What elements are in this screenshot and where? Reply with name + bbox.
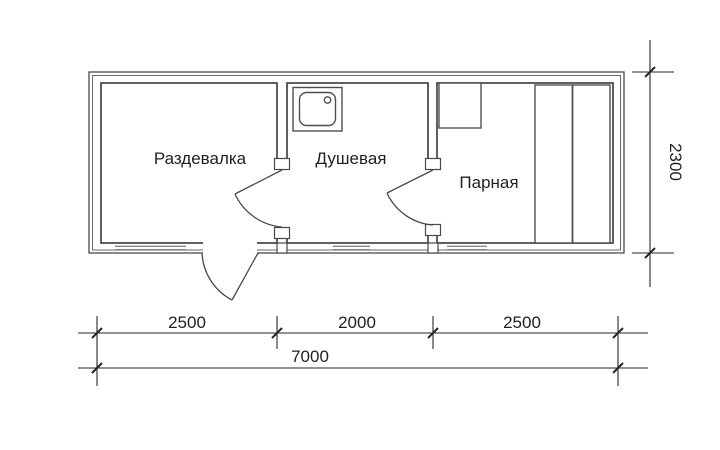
entrance-door-icon (202, 253, 258, 300)
window-razdevalka-icon (115, 246, 186, 250)
opening-dushevaya-parnaya (423, 170, 443, 226)
door-jamb-icon (426, 159, 441, 170)
shower-tray-icon (293, 88, 342, 132)
two-tier-bench-icon (535, 85, 610, 243)
floor-plan-page: Раздевалка Душевая Парная 2500 2000 2500… (0, 0, 720, 450)
opening-entrance (203, 242, 257, 256)
window-parnaya-icon (447, 246, 487, 250)
floor-plan-canvas: Раздевалка Душевая Парная 2500 2000 2500… (0, 0, 720, 450)
entrance-door-leaf (232, 253, 258, 300)
room-label-dushevaya: Душевая (316, 149, 387, 168)
door-jamb-icon (275, 228, 290, 239)
room-label-razdevalka: Раздевалка (154, 149, 247, 168)
dim-text-segment-left: 2500 (168, 313, 206, 332)
shower-drain (324, 97, 330, 103)
dim-text-height: 2300 (666, 143, 685, 181)
window-dushevaya-icon (333, 246, 370, 250)
partition-stub (277, 243, 287, 253)
room-label-parnaya: Парная (459, 173, 518, 192)
doors (202, 170, 433, 300)
door-jamb-icon (275, 159, 290, 170)
door-jamb-icon (426, 225, 441, 236)
door-openings (203, 159, 443, 256)
stove-icon (439, 83, 481, 128)
dim-text-total-width: 7000 (291, 347, 329, 366)
dim-tick-slashes-bottom (92, 328, 623, 373)
opening-razdevalka-dushevaya (272, 170, 292, 228)
dim-text-segment-right: 2500 (503, 313, 541, 332)
entrance-door-arc (202, 253, 232, 300)
dim-text-segment-middle: 2000 (338, 313, 376, 332)
room-labels: Раздевалка Душевая Парная (154, 149, 519, 192)
partition-stub (428, 243, 438, 253)
